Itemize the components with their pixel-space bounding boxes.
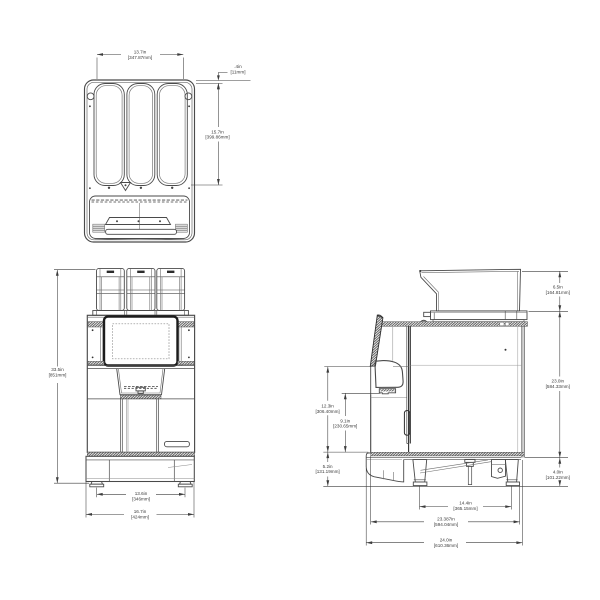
svg-text:23.387in: 23.387in — [437, 517, 455, 522]
svg-text:12.3in: 12.3in — [321, 404, 334, 409]
svg-text:[584.33mm]: [584.33mm] — [546, 384, 570, 389]
svg-text:[346mm]: [346mm] — [132, 496, 150, 501]
svg-text:[610.36mm]: [610.36mm] — [434, 543, 458, 548]
svg-text:[347.87mm]: [347.87mm] — [128, 55, 152, 60]
svg-text:[101.22mm]: [101.22mm] — [546, 475, 570, 480]
svg-text:[164.81mm]: [164.81mm] — [546, 290, 570, 295]
svg-text:[230.65mm]: [230.65mm] — [333, 424, 357, 429]
svg-text:16.7in: 16.7in — [134, 509, 147, 514]
svg-text:6.5in: 6.5in — [553, 285, 563, 290]
svg-text:[365.15mm]: [365.15mm] — [453, 506, 477, 511]
svg-text:33.5in: 33.5in — [51, 367, 64, 372]
svg-text:4.0in: 4.0in — [553, 470, 563, 475]
svg-text:[851mm]: [851mm] — [49, 372, 67, 377]
svg-text:15.7in: 15.7in — [211, 129, 224, 134]
svg-text:13.7in: 13.7in — [134, 50, 147, 55]
svg-text:[11mm]: [11mm] — [231, 70, 246, 75]
svg-text:[424mm]: [424mm] — [131, 514, 149, 519]
svg-text:[306.40mm]: [306.40mm] — [315, 409, 339, 414]
svg-text:23.0in: 23.0in — [552, 378, 565, 383]
svg-text:[399.86mm]: [399.86mm] — [205, 135, 229, 140]
svg-text:.4in: .4in — [234, 64, 242, 69]
svg-text:24.0in: 24.0in — [440, 538, 453, 543]
svg-text:13.6in: 13.6in — [135, 491, 148, 496]
svg-text:9.1in: 9.1in — [340, 418, 350, 423]
svg-text:[131.19mm]: [131.19mm] — [315, 469, 339, 474]
svg-text:[594.04mm]: [594.04mm] — [434, 522, 458, 527]
svg-text:14.4in: 14.4in — [459, 500, 472, 505]
